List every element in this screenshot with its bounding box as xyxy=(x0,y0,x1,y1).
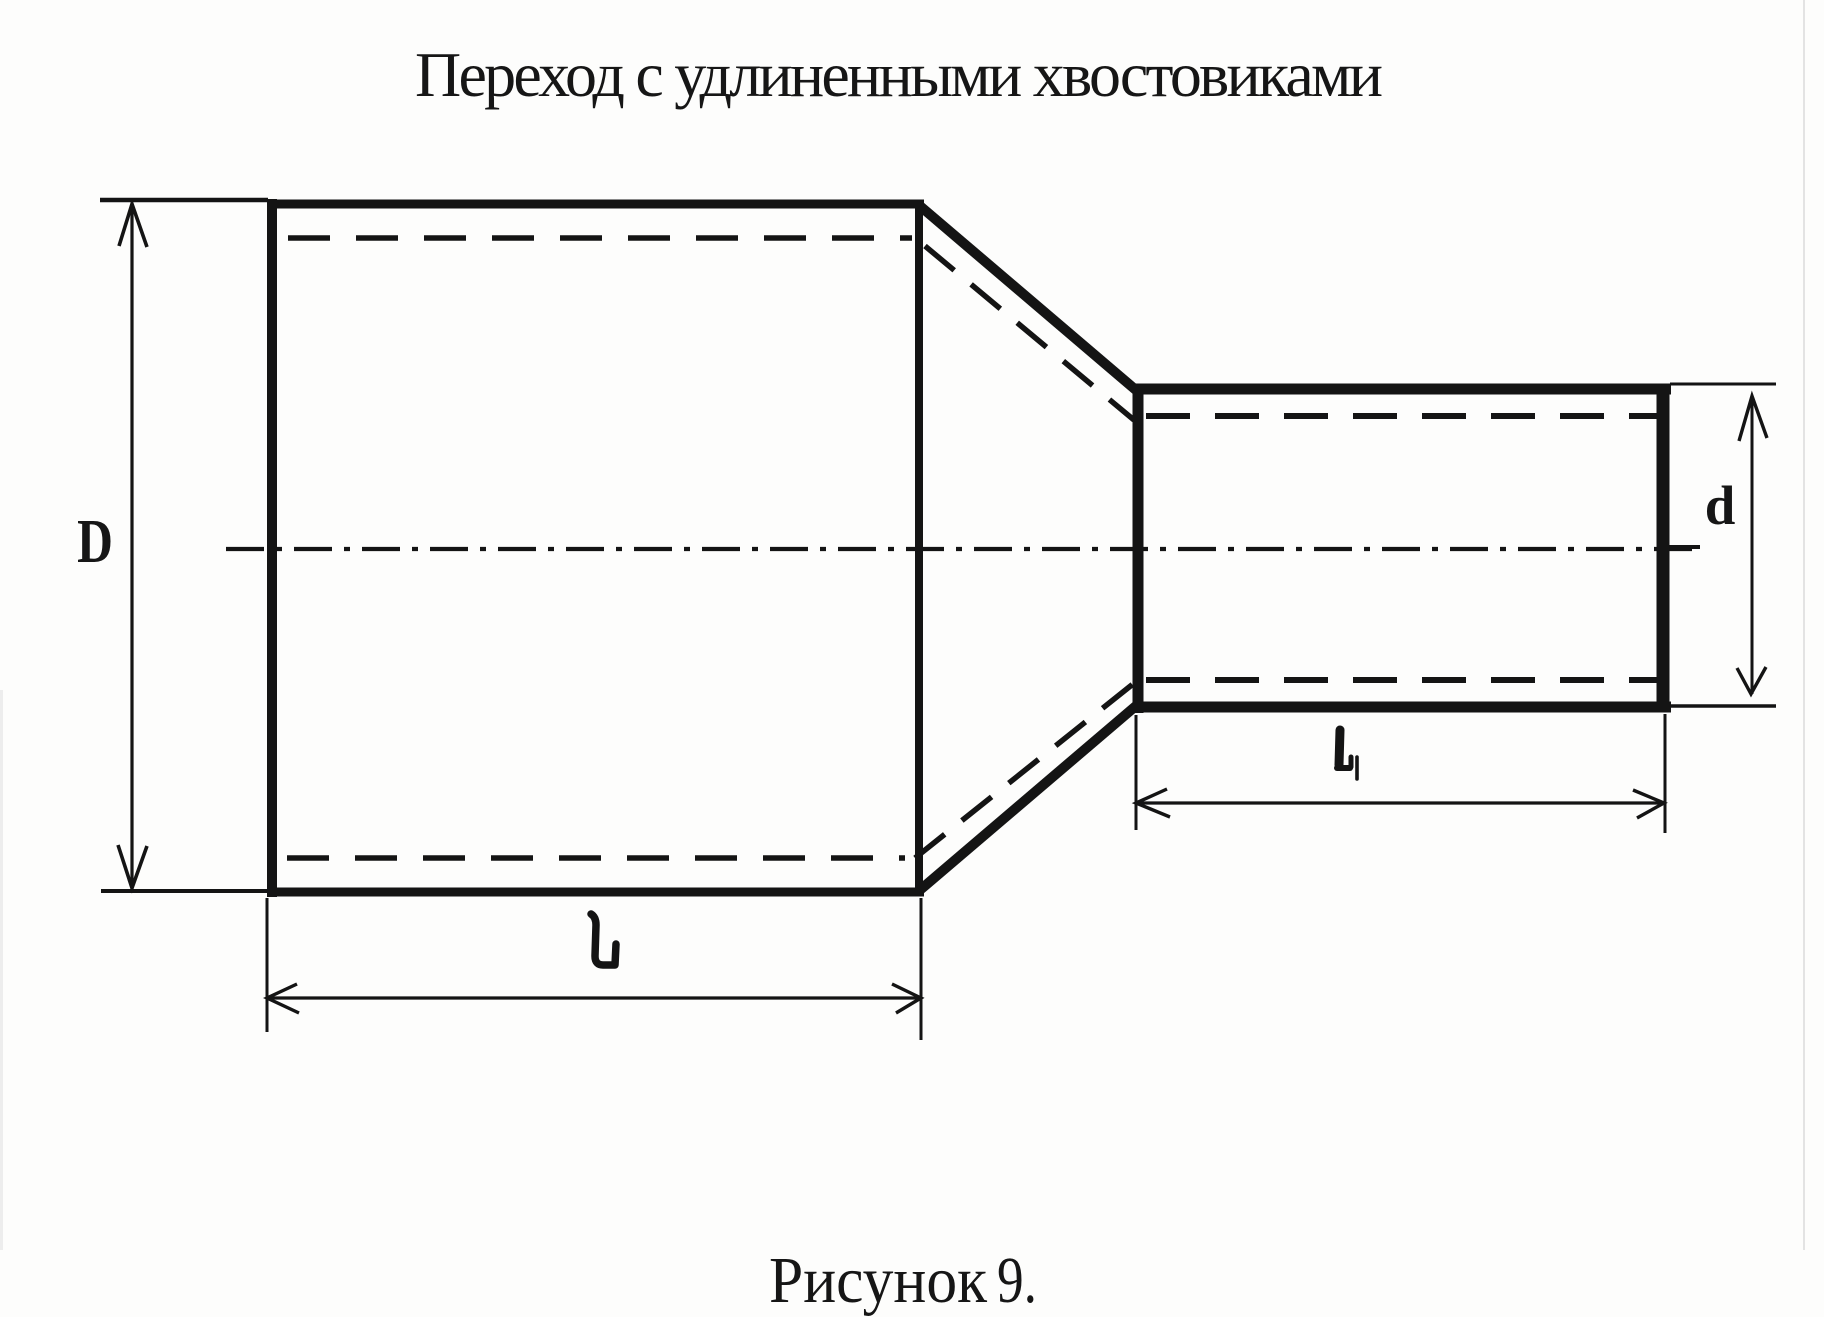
svg-text:9.: 9. xyxy=(997,1244,1037,1317)
svg-text:d: d xyxy=(1705,475,1736,536)
svg-text:D: D xyxy=(77,508,113,576)
svg-text:Рисунок: Рисунок xyxy=(769,1244,988,1317)
svg-text:Переход с удлиненными хвостови: Переход с удлиненными хвостовиками xyxy=(415,39,1383,110)
